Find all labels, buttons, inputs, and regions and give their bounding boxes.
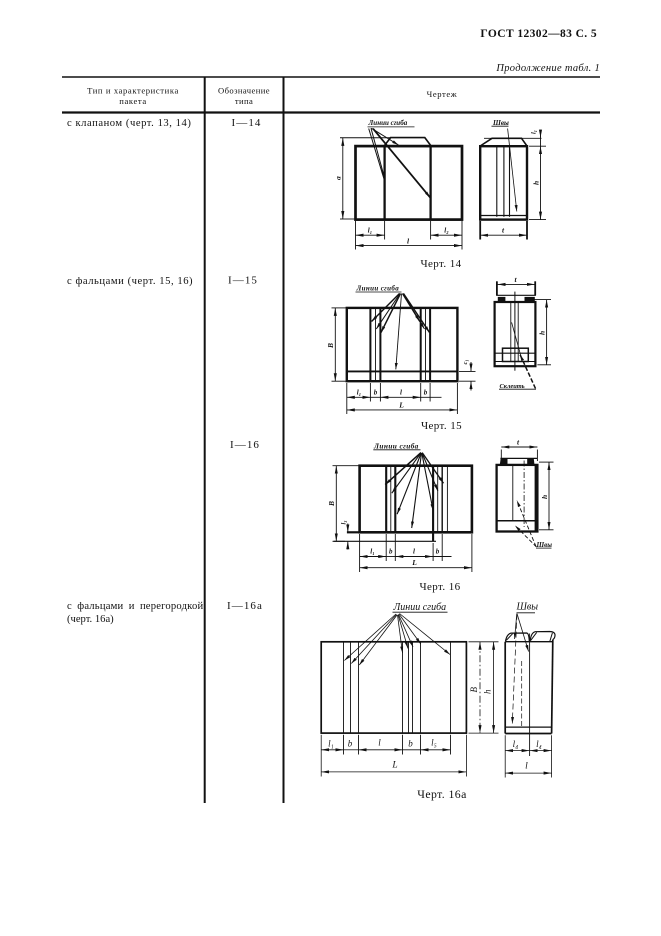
svg-text:пакета: пакета bbox=[119, 96, 146, 106]
svg-text:с фальцами (черт. 15, 16): с фальцами (черт. 15, 16) bbox=[67, 276, 193, 287]
svg-text:l₁: l₁ bbox=[368, 227, 372, 235]
svg-text:Черт. 14: Черт. 14 bbox=[420, 258, 461, 270]
svg-text:типа: типа bbox=[235, 96, 253, 106]
svg-text:l₅: l₅ bbox=[431, 737, 437, 747]
svg-text:l₁: l₁ bbox=[357, 388, 361, 396]
svg-text:b: b bbox=[389, 548, 393, 556]
svg-text:h: h bbox=[483, 689, 493, 694]
svg-text:t: t bbox=[517, 437, 520, 446]
svg-text:l₁: l₁ bbox=[531, 130, 538, 134]
svg-text:t: t bbox=[502, 226, 505, 235]
svg-text:l: l bbox=[400, 388, 402, 396]
svg-text:(черт. 16а): (черт. 16а) bbox=[67, 614, 114, 625]
svg-text:I—15: I—15 bbox=[228, 275, 258, 287]
svg-text:l: l bbox=[407, 237, 410, 246]
svg-text:Черт. 16: Черт. 16 bbox=[419, 581, 460, 593]
svg-text:I—14: I—14 bbox=[231, 117, 261, 129]
svg-text:I—16: I—16 bbox=[230, 439, 260, 451]
svg-text:Чертеж: Чертеж bbox=[427, 89, 458, 99]
svg-text:l₃: l₃ bbox=[341, 520, 348, 524]
svg-text:Линии сгиба: Линии сгиба bbox=[393, 602, 447, 613]
svg-text:с клапаном (черт. 13, 14): с клапаном (черт. 13, 14) bbox=[67, 118, 191, 129]
svg-text:h: h bbox=[532, 181, 541, 185]
svg-text:b: b bbox=[408, 738, 413, 748]
svg-text:Черт. 16а: Черт. 16а bbox=[417, 787, 467, 801]
svg-text:b: b bbox=[436, 548, 440, 556]
svg-text:Тип и характеристика: Тип и характеристика bbox=[87, 86, 179, 96]
svg-text:Черт. 15: Черт. 15 bbox=[421, 420, 462, 432]
svg-text:L: L bbox=[411, 558, 417, 567]
svg-text:h: h bbox=[538, 331, 547, 335]
svg-text:l₁: l₁ bbox=[370, 548, 374, 556]
svg-text:b: b bbox=[348, 738, 353, 748]
svg-text:l: l bbox=[525, 762, 528, 772]
svg-text:Линии сгиба: Линии сгиба bbox=[373, 441, 419, 450]
svg-text:ГОСТ 12302—83 С. 5: ГОСТ 12302—83 С. 5 bbox=[480, 28, 597, 40]
svg-text:l₂: l₂ bbox=[444, 227, 449, 235]
svg-text:b: b bbox=[374, 388, 378, 396]
svg-text:l₄: l₄ bbox=[513, 739, 519, 749]
svg-text:L: L bbox=[391, 761, 397, 771]
svg-text:с₁: с₁ bbox=[462, 359, 469, 364]
svg-text:с фальцами и перегородкой: с фальцами и перегородкой bbox=[67, 601, 203, 612]
svg-text:Швы: Швы bbox=[492, 119, 509, 127]
svg-text:l: l bbox=[413, 548, 415, 556]
svg-text:I—16а: I—16а bbox=[227, 600, 263, 612]
svg-text:l₄: l₄ bbox=[536, 739, 542, 749]
svg-text:t: t bbox=[514, 275, 517, 284]
svg-text:h: h bbox=[540, 495, 549, 499]
svg-text:l: l bbox=[378, 737, 381, 747]
svg-text:Швы: Швы bbox=[516, 602, 539, 613]
svg-text:Линии сгиба: Линии сгиба bbox=[356, 284, 400, 292]
svg-text:l₁: l₁ bbox=[328, 738, 334, 748]
svg-text:b: b bbox=[424, 388, 428, 396]
svg-text:В: В bbox=[326, 343, 335, 349]
svg-text:В: В bbox=[327, 501, 336, 507]
svg-text:В: В bbox=[469, 687, 479, 693]
svg-text:Продолжение табл. 1: Продолжение табл. 1 bbox=[495, 63, 600, 74]
svg-text:Обозначение: Обозначение bbox=[218, 86, 270, 96]
svg-text:L: L bbox=[398, 400, 404, 409]
svg-text:a: a bbox=[334, 176, 343, 180]
svg-text:Линии сгиба: Линии сгиба bbox=[368, 119, 408, 127]
